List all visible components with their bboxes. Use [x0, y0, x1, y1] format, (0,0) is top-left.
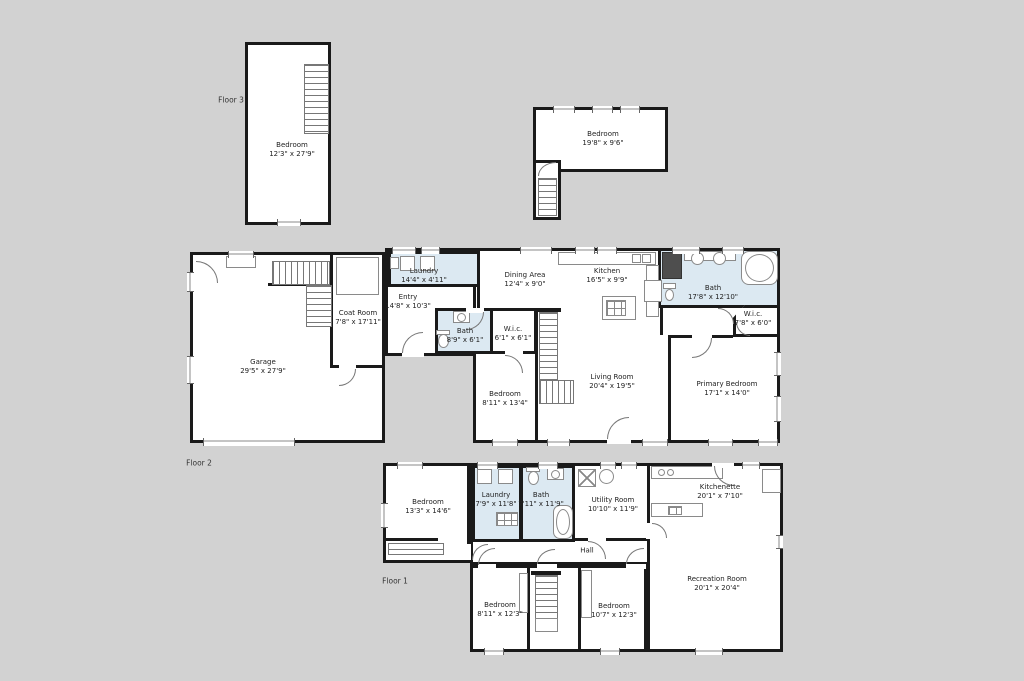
- room-label-f1-utility: Utility Room10'10" x 11'9": [588, 496, 638, 514]
- window: [592, 106, 613, 113]
- window: [776, 535, 783, 549]
- window: [672, 247, 700, 254]
- window: [695, 648, 723, 655]
- room-label-f2-kitchen: Kitchen16'5" x 9'9": [586, 267, 627, 285]
- wall: [330, 365, 339, 368]
- bathtub-basin: [556, 509, 570, 535]
- window: [642, 439, 668, 446]
- window: [538, 462, 558, 469]
- wall: [386, 538, 438, 541]
- window: [520, 247, 552, 254]
- window: [228, 251, 254, 258]
- room-label-f1-rec: Recreation Room20'1" x 20'4": [687, 575, 747, 593]
- room-label-f2-entry: Entry14'8" x 10'3": [385, 293, 431, 311]
- door-gap: [607, 439, 631, 444]
- fridge: [644, 280, 662, 302]
- room-label-f2-primary: Primary Bedroom17'1" x 14'0": [697, 380, 758, 398]
- sink: [642, 254, 651, 263]
- window: [392, 247, 416, 254]
- room-label-f2-living: Living Room20'4" x 19'5": [589, 373, 635, 391]
- window: [600, 462, 616, 469]
- staircase: [272, 261, 330, 285]
- door-gap: [626, 564, 646, 569]
- toilet: [665, 289, 674, 301]
- window: [492, 439, 518, 446]
- sink: [632, 254, 641, 263]
- room-label-f1-bedroom-bl: Bedroom8'11" x 12'3": [477, 601, 523, 619]
- window: [477, 462, 498, 469]
- room-label-f2-laundry: Laundry14'4" x 4'11": [401, 267, 447, 285]
- room-label-f1-kitchenette: Kitchenette20'1" x 7'10": [697, 483, 743, 501]
- dryer: [498, 469, 513, 484]
- wall: [356, 365, 385, 368]
- room-label-f2-bath-small: Bath8'9" x 6'1": [447, 327, 484, 345]
- window: [187, 356, 194, 384]
- room-label-f1-bedroom-br: Bedroom10'7" x 12'3": [591, 602, 637, 620]
- floor-plan: Floor 3 Bedroom 12'3" x 27'9" Bedroom 19…: [0, 0, 1024, 681]
- window: [621, 462, 637, 469]
- staircase: [535, 575, 558, 619]
- window: [484, 648, 504, 655]
- room-label-f2-wic-small: W.i.c.6'1" x 6'1": [495, 325, 532, 343]
- toilet: [528, 471, 539, 485]
- washer: [477, 469, 492, 484]
- wall: [535, 308, 538, 443]
- room-label-f2-bath: Bath17'8" x 12'10": [688, 284, 738, 302]
- room-label-f1-bath: Bath7'11" x 11'9": [518, 491, 564, 509]
- room-label-f1-hall: Hall: [580, 546, 593, 555]
- closet-shelf: [336, 257, 379, 295]
- window: [758, 439, 778, 446]
- window: [381, 503, 388, 528]
- window: [620, 106, 640, 113]
- window: [600, 648, 620, 655]
- sink: [457, 313, 466, 322]
- room-label-f1-bedroom: Bedroom13'3" x 14'6": [405, 498, 451, 516]
- stair-landing: [539, 380, 574, 404]
- window: [708, 439, 733, 446]
- window: [575, 247, 595, 254]
- window: [277, 219, 301, 226]
- staircase: [306, 285, 332, 327]
- laundry-counter: [496, 512, 518, 526]
- window: [722, 247, 744, 254]
- door-gap: [646, 523, 651, 539]
- water-heater: [578, 469, 596, 487]
- wall: [477, 248, 480, 310]
- window: [421, 247, 440, 254]
- window: [187, 272, 194, 292]
- floor2-label: Floor 2: [186, 459, 212, 468]
- wall: [660, 305, 663, 335]
- stair-landing: [535, 618, 558, 632]
- window: [397, 462, 423, 469]
- room-label-f2-wic: W.i.c.7'8" x 6'0": [735, 310, 772, 328]
- room-label-f3-bedroom: Bedroom 12'3" x 27'9": [269, 141, 315, 159]
- closet: [388, 543, 444, 555]
- staircase: [304, 64, 329, 134]
- fridge: [762, 469, 781, 493]
- window: [742, 462, 760, 469]
- door-gap: [537, 564, 557, 569]
- staircase: [539, 312, 558, 382]
- stove: [606, 300, 626, 316]
- room-label-f2-coat-room: Coat Room7'8" x 17'11": [335, 309, 381, 327]
- pantry-closet: [662, 252, 682, 279]
- garage-door: [203, 438, 295, 446]
- room-label-f2-garage: Garage29'5" x 27'9": [240, 358, 286, 376]
- sink: [390, 257, 399, 269]
- wall: [712, 335, 733, 338]
- floor1-label: Floor 1: [382, 577, 408, 586]
- stove: [668, 506, 682, 515]
- sink: [551, 470, 560, 479]
- sink: [658, 469, 665, 476]
- sink: [667, 469, 674, 476]
- room-label-f3-bedroom2: Bedroom 19'8" x 9'6": [582, 130, 623, 148]
- room-label-f2-bedroom: Bedroom8'11" x 13'4": [482, 390, 528, 408]
- wall: [668, 335, 692, 338]
- floor3-label: Floor 3: [218, 96, 244, 105]
- wall: [668, 335, 671, 443]
- door-gap: [466, 544, 471, 560]
- window: [553, 106, 575, 113]
- window: [597, 247, 617, 254]
- bathtub: [745, 254, 774, 282]
- utility-equipment: [599, 469, 614, 484]
- room-label-f2-dining: Dining Area12'4" x 9'0": [504, 271, 545, 289]
- wall: [606, 538, 650, 541]
- window: [774, 396, 781, 422]
- window: [547, 439, 570, 446]
- wall: [575, 538, 588, 541]
- window: [774, 352, 781, 376]
- staircase: [538, 178, 557, 216]
- room-label-f1-laundry: Laundry7'9" x 11'8": [475, 491, 516, 509]
